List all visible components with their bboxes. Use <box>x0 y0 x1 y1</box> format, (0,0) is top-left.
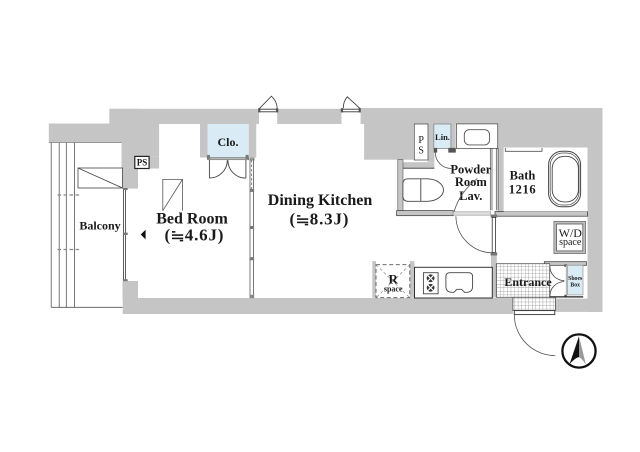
svg-text:1216: 1216 <box>509 182 536 196</box>
svg-text:Balcony: Balcony <box>79 219 120 233</box>
svg-text:PS: PS <box>137 158 148 168</box>
svg-text:Lin.: Lin. <box>435 132 450 142</box>
svg-text:(: ( <box>290 210 296 229</box>
svg-text:space: space <box>559 237 582 248</box>
svg-text:4.6J): 4.6J) <box>185 226 224 245</box>
svg-text:(: ( <box>165 226 171 245</box>
svg-text:Clo.: Clo. <box>218 135 239 149</box>
svg-text:8.3J): 8.3J) <box>310 210 349 229</box>
svg-text:Shoes: Shoes <box>568 276 583 282</box>
svg-text:Room: Room <box>455 175 488 189</box>
svg-text:Bath: Bath <box>510 169 536 183</box>
svg-text:S: S <box>418 146 424 157</box>
svg-text:P: P <box>418 135 424 146</box>
svg-text:Lav.: Lav. <box>459 189 482 203</box>
svg-text:Entrance: Entrance <box>504 275 552 289</box>
svg-text:Box: Box <box>570 283 580 289</box>
svg-text:space: space <box>384 285 403 294</box>
svg-text:Dining Kitchen: Dining Kitchen <box>268 192 373 209</box>
